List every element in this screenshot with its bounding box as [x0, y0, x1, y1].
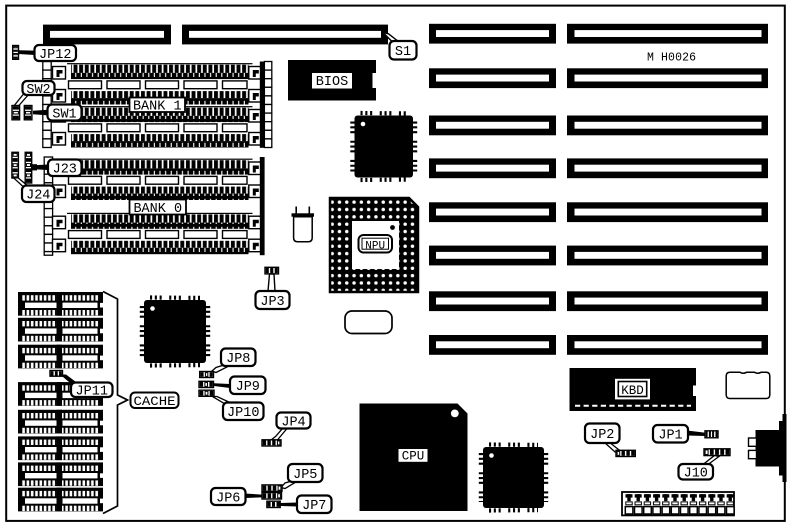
svg-text:JP7: JP7 [302, 499, 326, 514]
svg-text:JP11: JP11 [76, 385, 108, 400]
svg-text:JP2: JP2 [590, 428, 614, 443]
svg-text:JP9: JP9 [236, 380, 260, 395]
svg-text:JP1: JP1 [658, 429, 682, 444]
svg-text:BANK 1: BANK 1 [133, 100, 182, 115]
svg-text:JP6: JP6 [216, 491, 240, 506]
svg-text:M H0026: M H0026 [647, 52, 696, 65]
svg-text:S1: S1 [395, 45, 411, 60]
svg-text:BIOS: BIOS [316, 75, 348, 90]
svg-text:SW2: SW2 [26, 83, 50, 98]
svg-text:JP3: JP3 [260, 295, 284, 310]
svg-text:JP12: JP12 [39, 48, 71, 63]
svg-text:KBD: KBD [621, 384, 644, 398]
svg-text:JP8: JP8 [226, 352, 250, 367]
svg-text:NPU: NPU [365, 240, 385, 252]
svg-text:BANK 0: BANK 0 [133, 202, 182, 217]
svg-text:SW1: SW1 [52, 107, 76, 122]
svg-text:CACHE: CACHE [134, 395, 176, 409]
svg-text:J24: J24 [26, 189, 50, 204]
svg-text:CPU: CPU [402, 449, 425, 463]
svg-text:JP4: JP4 [281, 415, 305, 430]
svg-text:JP5: JP5 [293, 468, 317, 483]
svg-text:J10: J10 [684, 467, 708, 482]
svg-text:JP10: JP10 [227, 406, 259, 421]
svg-text:J23: J23 [53, 163, 77, 178]
